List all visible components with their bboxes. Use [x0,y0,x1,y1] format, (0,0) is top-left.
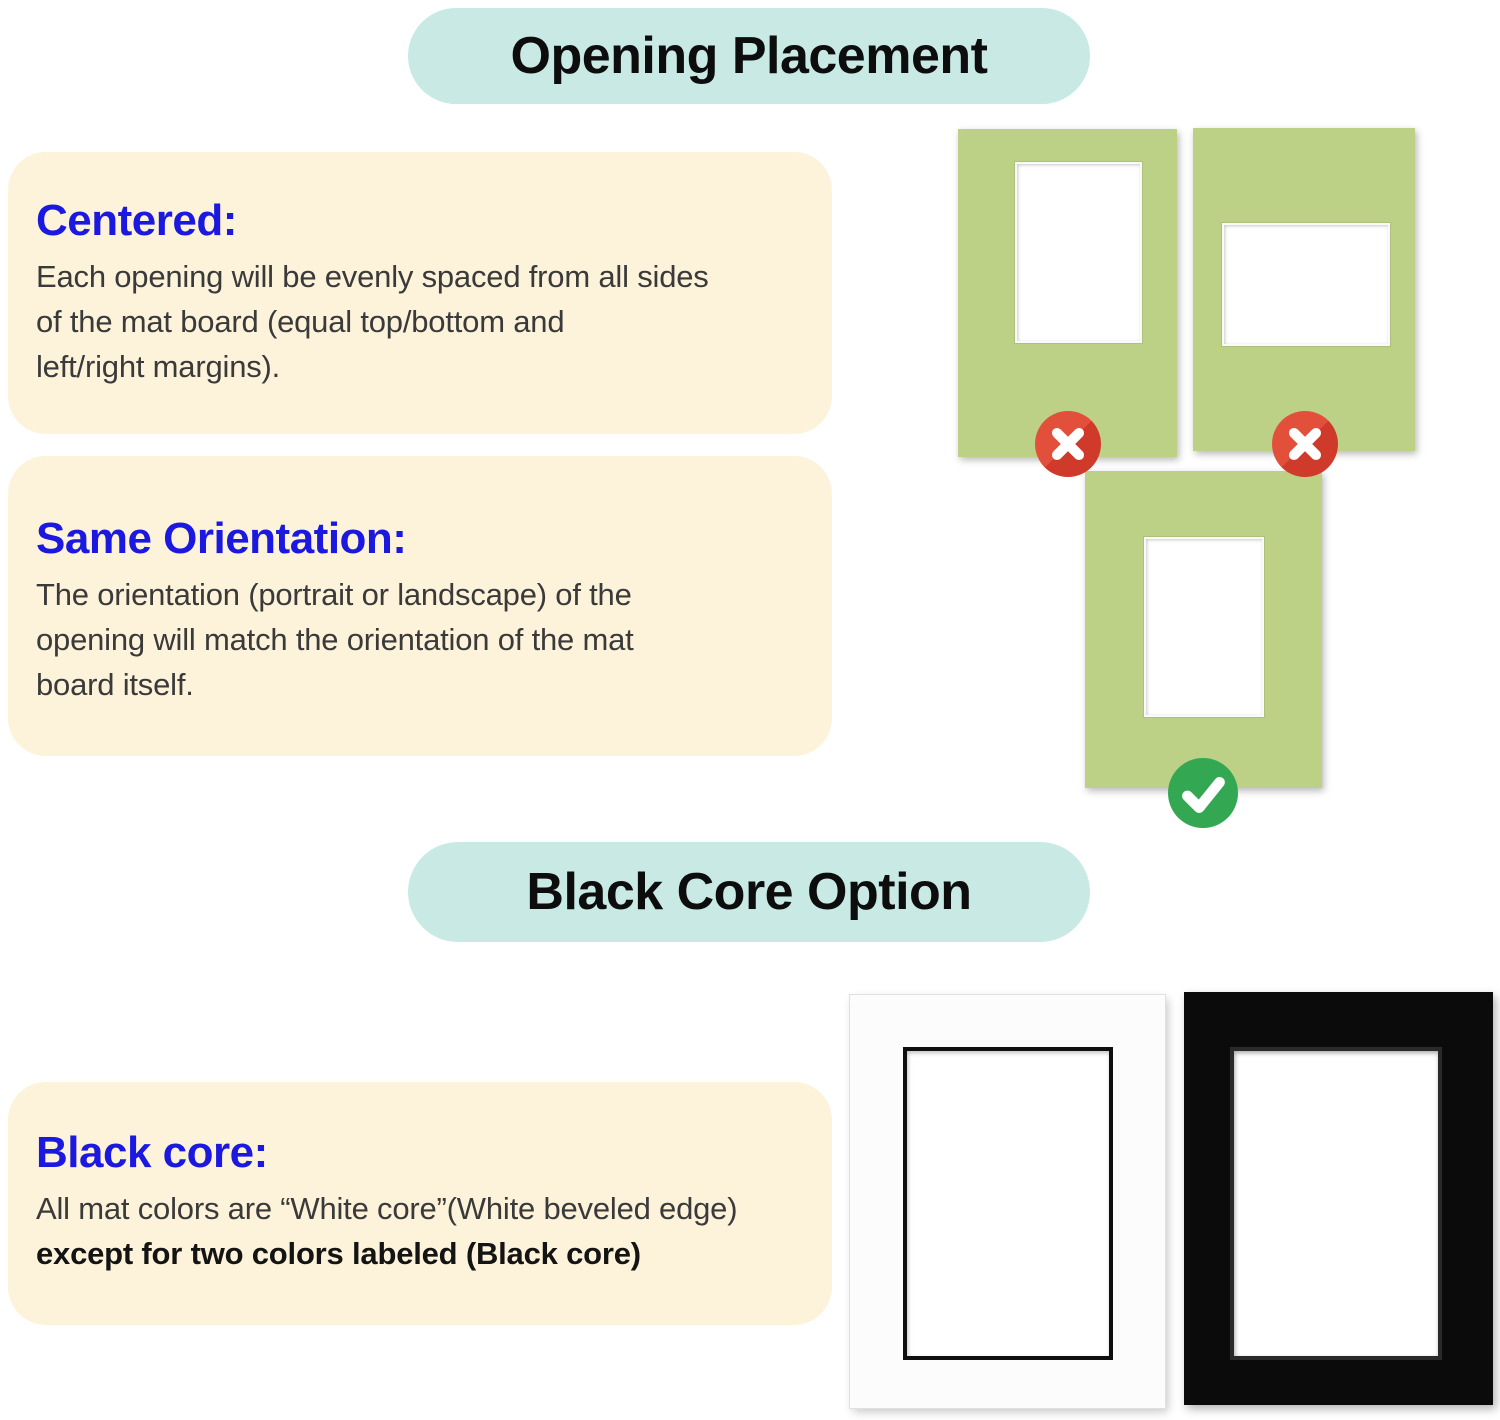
mat-opening-black-bevel [1230,1047,1442,1360]
mat-opening [1015,162,1142,343]
mat-example-white-black-core [850,995,1165,1408]
section-banner-opening-placement: Opening Placement [408,8,1090,104]
card-heading: Same Orientation: [36,514,812,564]
card-body: Each opening will be evenly spaced from … [36,254,812,389]
mat-opening [1222,223,1390,346]
mat-example-black-black-core [1184,992,1493,1405]
x-circle-icon [1272,411,1338,477]
mat-example-centered-opening [1085,471,1322,788]
card-same-orientation: Same Orientation: The orientation (portr… [8,456,832,756]
mat-opening-black-bevel [903,1047,1113,1360]
check-circle-icon [1168,758,1238,828]
mat-example-offcenter-opening [958,129,1177,457]
card-centered: Centered: Each opening will be evenly sp… [8,152,832,434]
card-body: All mat colors are “White core”(White be… [36,1186,812,1231]
card-body-bold: except for two colors labeled (Black cor… [36,1231,812,1276]
section-title: Opening Placement [511,26,988,86]
section-title: Black Core Option [526,862,971,922]
card-heading: Black core: [36,1128,812,1178]
section-banner-black-core-option: Black Core Option [408,842,1090,942]
mat-board-infographic: Opening Placement Centered: Each opening… [0,0,1500,1420]
mat-opening [1144,537,1264,717]
x-circle-icon [1035,411,1101,477]
mat-example-landscape-opening [1193,128,1415,451]
card-black-core: Black core: All mat colors are “White co… [8,1082,832,1325]
card-heading: Centered: [36,196,812,246]
card-body: The orientation (portrait or landscape) … [36,572,812,707]
